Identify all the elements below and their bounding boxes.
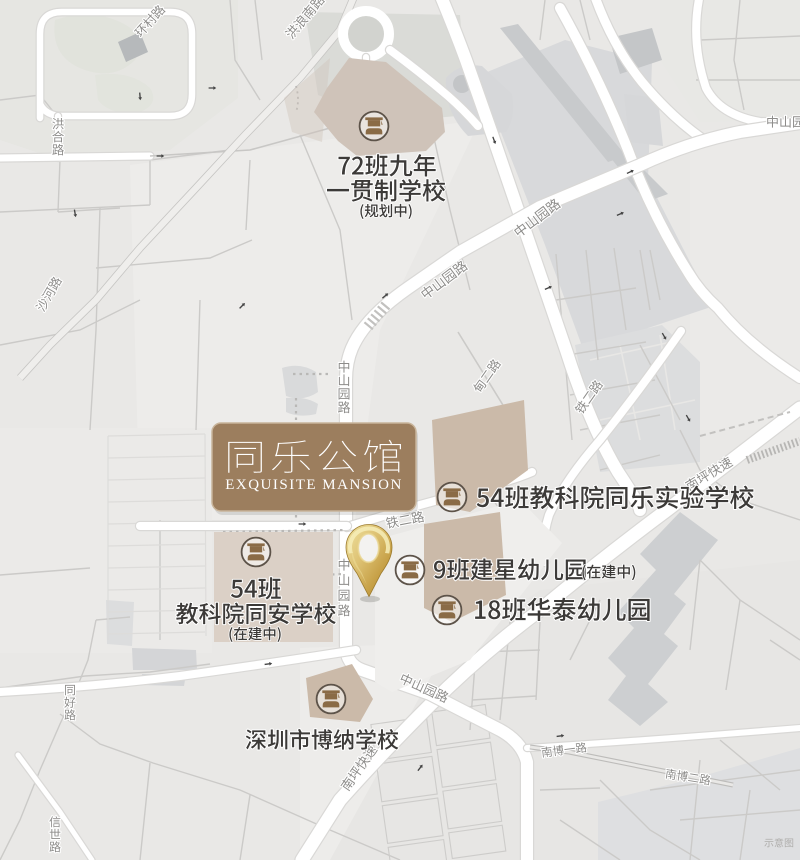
svg-text:EXQUISITE MANSION: EXQUISITE MANSION (225, 477, 403, 493)
